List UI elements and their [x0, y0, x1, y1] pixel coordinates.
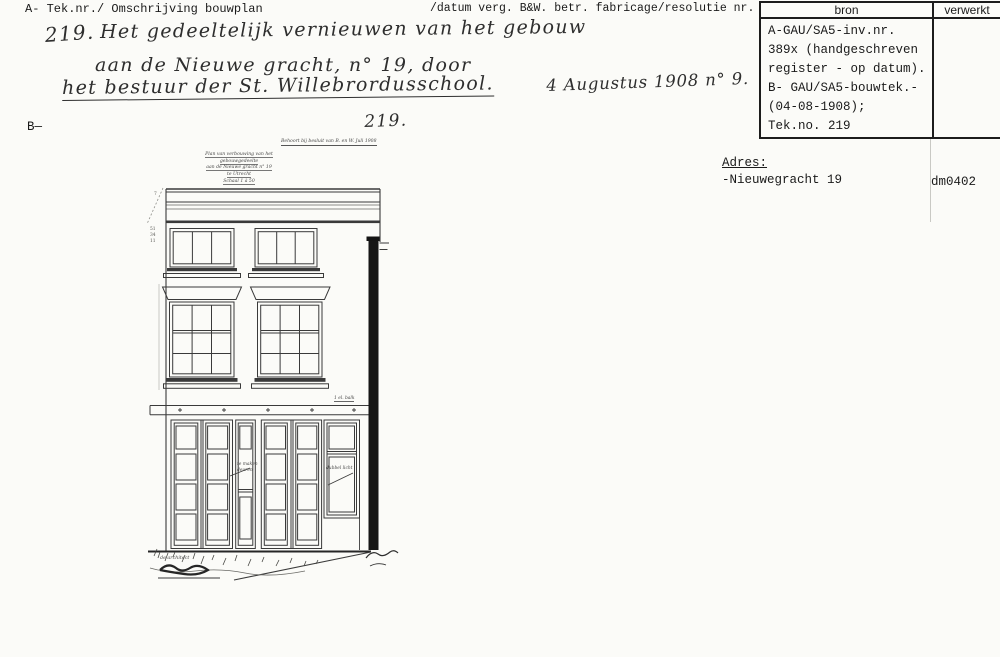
architect-note: de architect: [160, 556, 189, 561]
column-header-bron: bron: [761, 3, 932, 17]
title-line: Plan van verbouwing van het gebouwgedeel…: [205, 152, 273, 165]
margin-mark-b: B—: [27, 120, 42, 134]
address-label: Adres:: [722, 155, 842, 172]
second-floor-windows: [164, 229, 324, 278]
shop-window-note: dubbel licht: [326, 466, 353, 471]
address-block: Adres: -Nieuwegracht 19: [722, 155, 842, 189]
scanned-register-card: A- Tek.nr./ Omschrijving bouwplan /datum…: [0, 0, 1000, 657]
title-line: te Utrecht: [227, 172, 251, 178]
first-floor-windows: [163, 287, 331, 388]
drawing-title-block: Plan van verbouwing van het gebouwgedeel…: [186, 152, 292, 185]
dimension-figures: 5134117: [150, 192, 157, 244]
header-left-label: A- Tek.nr./ Omschrijving bouwplan: [25, 2, 263, 16]
door-note-line: te maken: [237, 462, 258, 468]
handwritten-line3-underlined: het bestuur der St. Willebrordusschool.: [62, 72, 494, 101]
handwritten-number: 219.: [44, 20, 95, 47]
title-line: Schaal 1 à 50: [223, 179, 255, 185]
bron-line: B- GAU/SA5-bouwtek.-: [768, 79, 928, 98]
door-note: te maken deuren: [237, 462, 258, 473]
svg-text:11: 11: [150, 239, 156, 244]
bron-line: A-GAU/SA5-inv.nr.: [768, 22, 928, 41]
handwritten-line3-date: 4 Augustus 1908 n° 9.: [546, 69, 749, 95]
scan-code: dm0402: [931, 175, 976, 189]
facade-drawing-svg: 5134117: [138, 138, 438, 598]
svg-text:7: 7: [154, 192, 157, 197]
handwritten-line1: Het gedeeltelijk vernieuwen van het gebo…: [100, 16, 587, 43]
register-table: bron verwerkt A-GAU/SA5-inv.nr. 389x (ha…: [759, 1, 1000, 139]
bron-cell: A-GAU/SA5-inv.nr. 389x (handgeschreven r…: [768, 22, 928, 136]
bron-line: Tek.no. 219: [768, 117, 928, 136]
svg-text:51: 51: [150, 227, 156, 232]
rain-pipe: [367, 237, 390, 551]
header-right-label: /datum verg. B&W. betr. fabricage/resolu…: [430, 2, 754, 15]
beam-note: 1 el. balk: [334, 396, 354, 402]
bron-line: register - op datum).: [768, 60, 928, 79]
approval-note: Behoort bij besluit van B. en W. Juli 19…: [281, 139, 377, 146]
column-header-verwerkt: verwerkt: [934, 3, 1000, 17]
register-table-column-divider: [932, 3, 934, 137]
handwritten-number-repeat: 219.: [364, 110, 408, 131]
title-line: aan de Nieuwe gracht n° 19: [206, 165, 272, 171]
beam-band: [150, 406, 369, 415]
handwritten-line3: het bestuur der St. Willebrordusschool.: [62, 72, 494, 99]
bron-line: 389x (handgeschreven: [768, 41, 928, 60]
bron-line: (04-08-1908);: [768, 98, 928, 117]
door-note-line: deuren: [237, 468, 258, 474]
svg-text:34: 34: [150, 233, 156, 238]
ground-floor-shopfront: [171, 420, 360, 550]
register-table-header: bron verwerkt: [761, 3, 1000, 19]
address-value: -Nieuwegracht 19: [722, 172, 842, 189]
ground-and-signatures: [148, 549, 398, 580]
